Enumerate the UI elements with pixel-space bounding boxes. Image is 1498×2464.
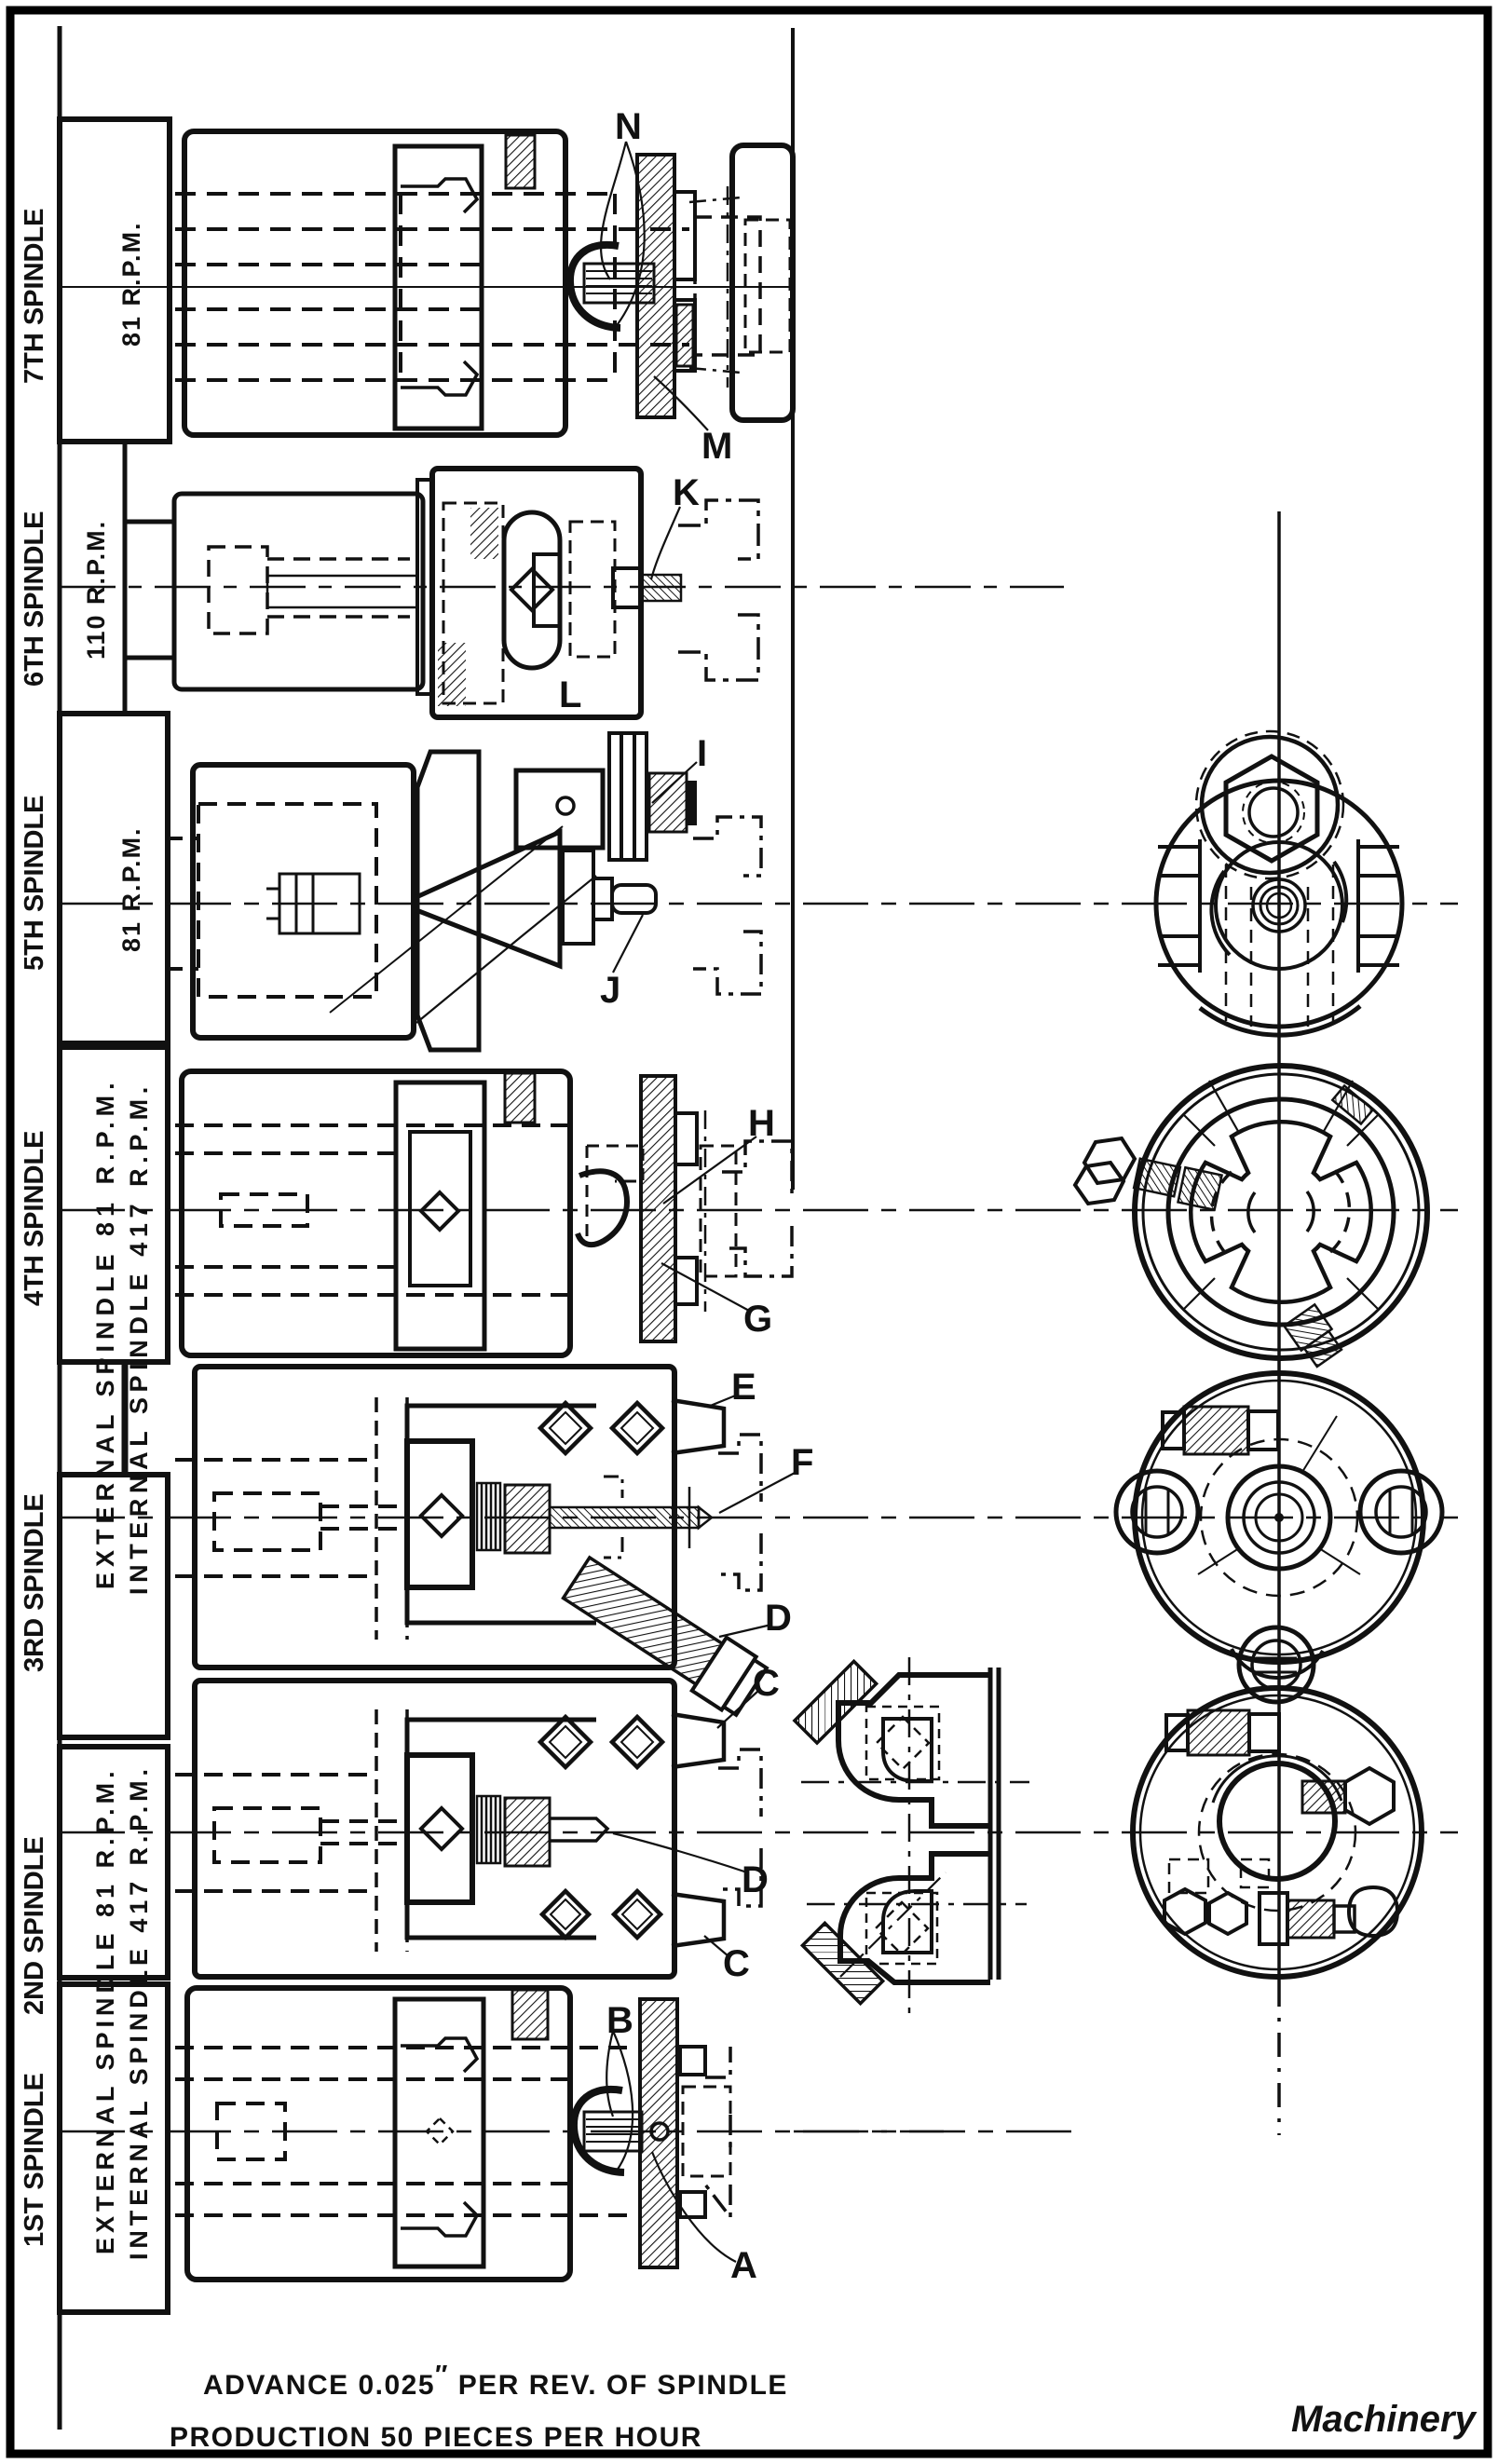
- svg-text:B: B: [606, 2000, 633, 2041]
- svg-text:H: H: [748, 1103, 775, 1144]
- svg-text:6TH SPINDLE: 6TH SPINDLE: [20, 510, 49, 687]
- svg-text:EXTERNAL SPINDLE 81 R.P.M.: EXTERNAL SPINDLE 81 R.P.M.: [91, 1077, 119, 1589]
- svg-text:E: E: [731, 1367, 756, 1408]
- svg-text:C: C: [753, 1663, 780, 1704]
- svg-text:A: A: [730, 2245, 757, 2286]
- svg-text:INTERNAL SPINDLE 417 R.P.M.: INTERNAL SPINDLE 417 R.P.M.: [125, 1764, 153, 2260]
- svg-text:N: N: [615, 106, 642, 147]
- svg-text:Machinery: Machinery: [1291, 2399, 1478, 2440]
- svg-text:M: M: [701, 426, 732, 467]
- svg-text:C: C: [723, 1943, 750, 1984]
- svg-text:1ST SPINDLE: 1ST SPINDLE: [20, 2073, 49, 2247]
- svg-text:J: J: [600, 970, 620, 1011]
- svg-text:3RD SPINDLE: 3RD SPINDLE: [20, 1493, 49, 1672]
- svg-text:L: L: [559, 674, 581, 715]
- svg-text:I: I: [697, 733, 707, 774]
- svg-text:7TH SPINDLE: 7TH SPINDLE: [20, 208, 49, 384]
- svg-text:D: D: [765, 1598, 792, 1639]
- svg-text:5TH SPINDLE: 5TH SPINDLE: [20, 795, 49, 971]
- svg-text:110 R.P.M.: 110 R.P.M.: [82, 520, 110, 660]
- svg-text:81 R.P.M.: 81 R.P.M.: [117, 826, 145, 952]
- svg-text:PRODUCTION 50 PIECES PER HOUR: PRODUCTION 50 PIECES PER HOUR: [170, 2422, 702, 2453]
- svg-text:G: G: [743, 1299, 772, 1340]
- svg-text:D: D: [742, 1859, 769, 1900]
- svg-text:F: F: [791, 1442, 813, 1483]
- svg-text:4TH SPINDLE: 4TH SPINDLE: [20, 1130, 49, 1306]
- svg-text:81 R.P.M.: 81 R.P.M.: [117, 221, 145, 347]
- svg-text:EXTERNAL SPINDLE 81 R.P.M.: EXTERNAL SPINDLE 81 R.P.M.: [91, 1766, 119, 2254]
- svg-text:2ND SPINDLE: 2ND SPINDLE: [20, 1836, 49, 2015]
- svg-text:K: K: [673, 472, 700, 513]
